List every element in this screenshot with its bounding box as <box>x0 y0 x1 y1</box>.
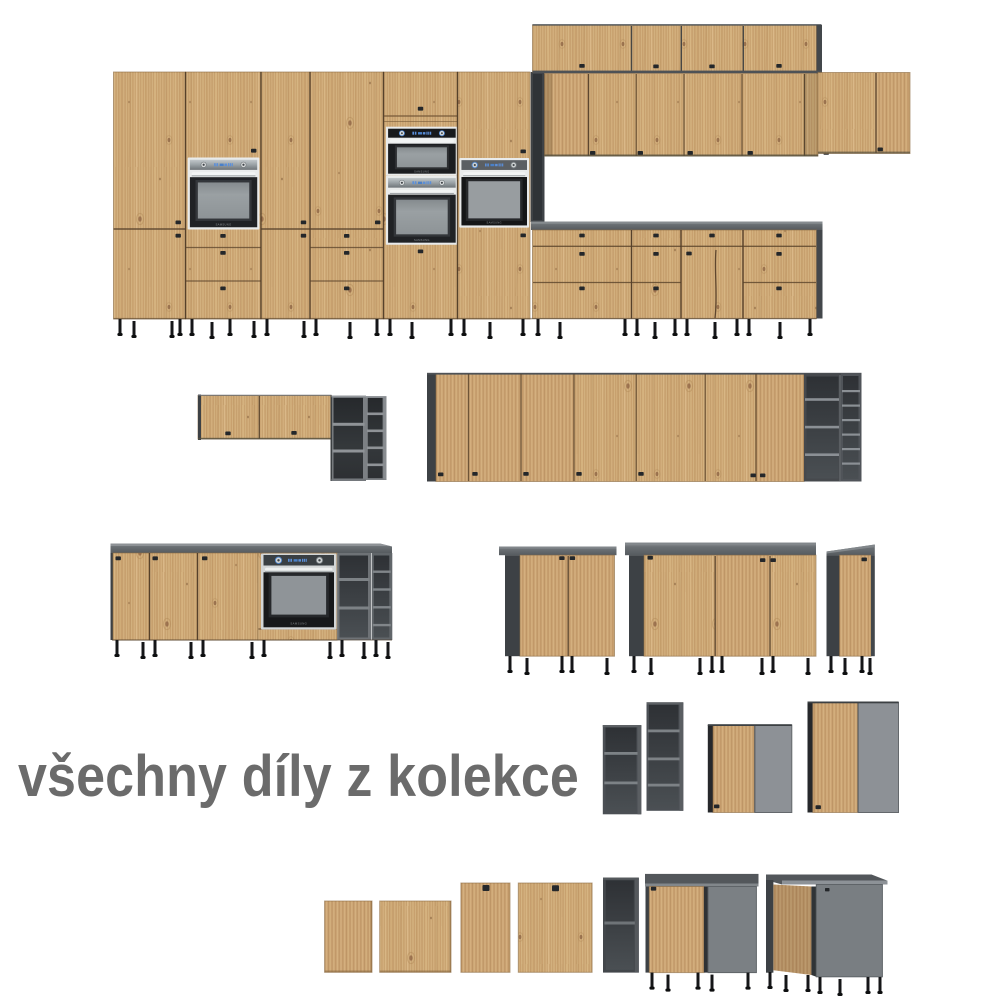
svg-text:všechny díly z kolekce: všechny díly z kolekce <box>18 743 579 808</box>
svg-text:SAMSUNG: SAMSUNG <box>290 622 307 626</box>
